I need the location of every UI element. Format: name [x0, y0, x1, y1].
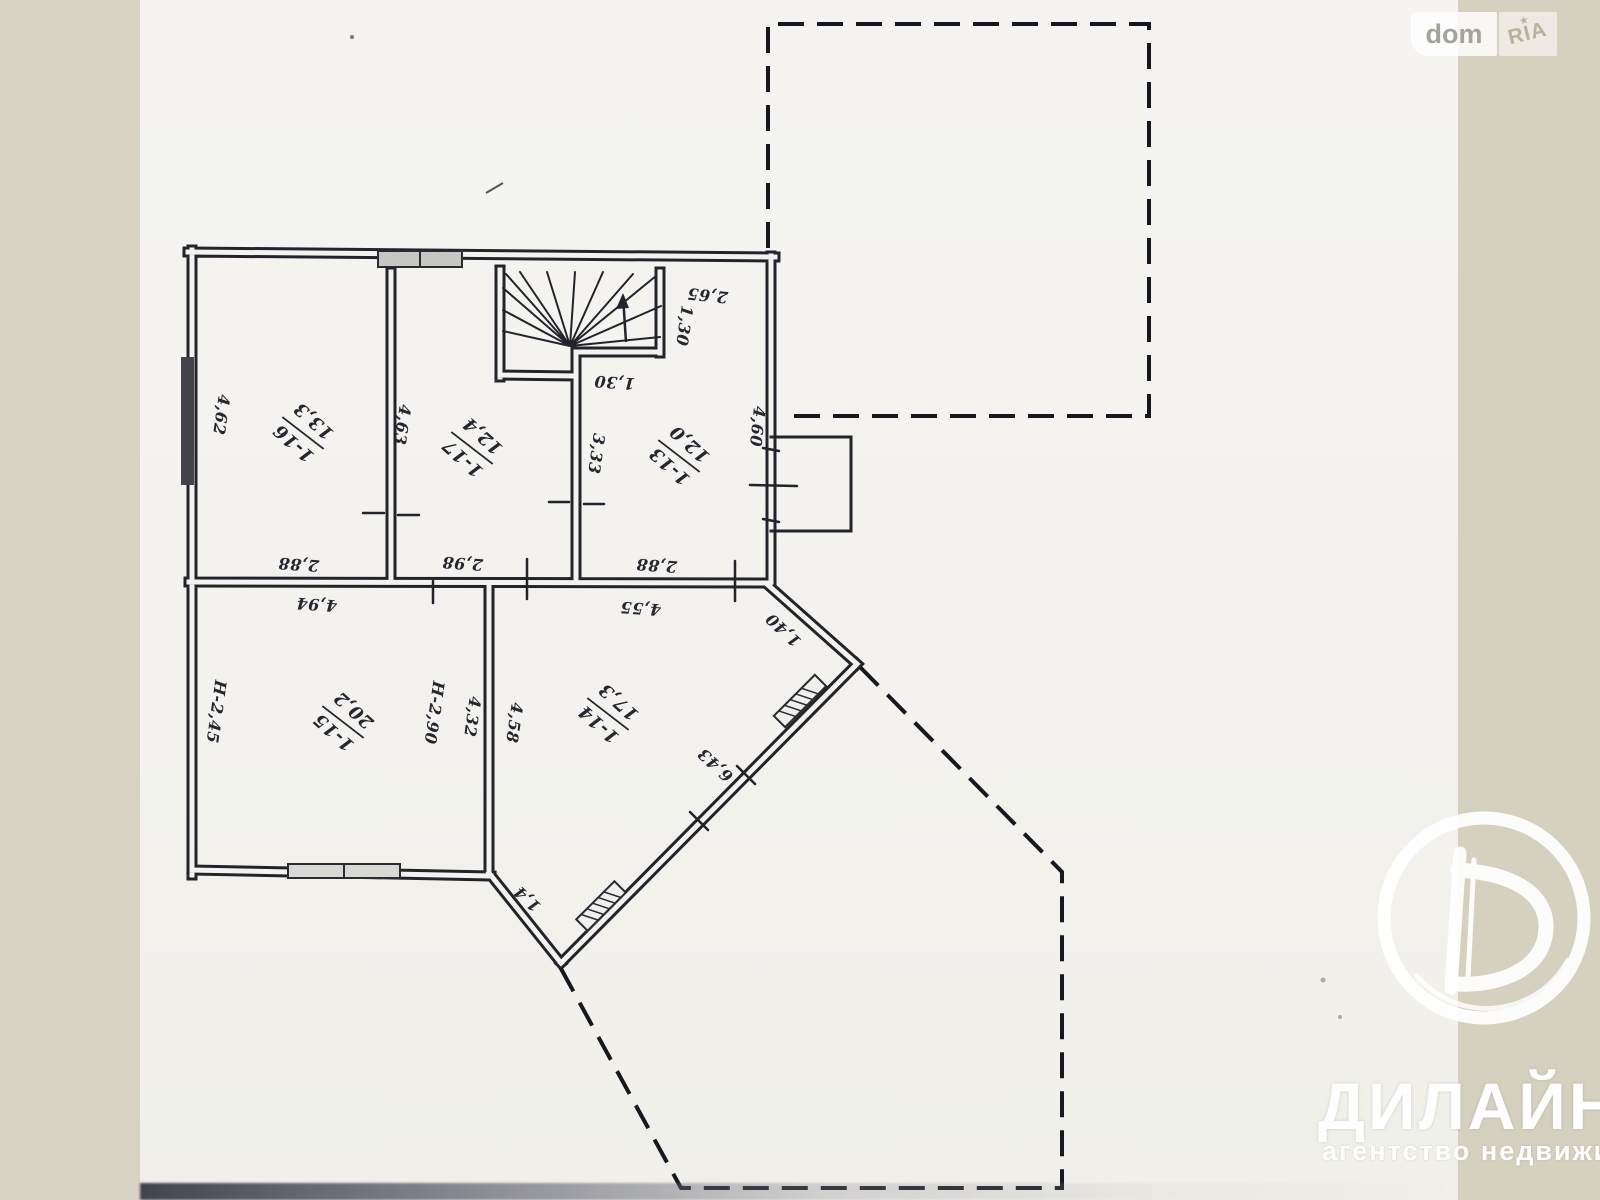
dim-room17-bottom: 2,98 [442, 553, 485, 575]
dim-room16-left: 4,62 [209, 393, 234, 436]
floor-plan-drawing: 1-16 13,3 1-17 12,4 1-13 12,0 1-15 20,2 … [0, 0, 1600, 1200]
scan-edge-shadow [140, 1183, 1458, 1200]
scanned-floor-plan-page: 1-16 13,3 1-17 12,4 1-13 12,0 1-15 20,2 … [0, 0, 1600, 1200]
dim-room14-top: 4,55 [620, 598, 662, 620]
dim-wall-17-13: 3,33 [584, 432, 609, 475]
domria-watermark-ria: ★ RIA [1499, 12, 1557, 56]
window-left-wall [181, 357, 194, 485]
dim-room16-bottom: 2,88 [278, 554, 321, 576]
window-bottom-wall [288, 864, 400, 878]
dim-height-room15-mid: H-2,90 [421, 679, 449, 746]
domria-watermark-dom: dom [1411, 12, 1497, 56]
agency-tagline: агентство недвижимо [1322, 1136, 1600, 1167]
dim-stairs-top: 2,65 [686, 284, 730, 307]
dim-right-wall: 4,60 [746, 405, 769, 448]
dashed-outline-upper [768, 24, 1149, 416]
dashed-outline-lower [559, 667, 1062, 1188]
walls [188, 250, 857, 963]
dim-stairs-landing: 1,30 [594, 372, 636, 394]
domria-ria-text: RIA [1506, 18, 1550, 51]
dim-wall-15-14-lower: 4,58 [502, 701, 527, 744]
dim-wall-15-14-upper: 4,32 [460, 695, 485, 738]
room-label-1-15: 1-15 20,2 [308, 685, 381, 758]
staircase [503, 272, 661, 346]
domria-watermark: dom ★ RIA [1411, 12, 1557, 56]
dim-diagonal-se: 6,43 [694, 744, 737, 786]
dim-stairs-right: 1,30 [672, 304, 697, 347]
scan-marks [350, 35, 1342, 1019]
domria-dom-text: dom [1426, 19, 1483, 50]
dim-height-room15-left: H-2,45 [203, 678, 231, 745]
room-label-1-13: 1-13 12,0 [644, 419, 717, 492]
agency-name: ДИЛАЙН [1318, 1068, 1600, 1144]
balcony-bay-outline [771, 437, 851, 531]
dim-room15-top: 4,94 [296, 594, 338, 616]
room-label-1-17: 1-17 12,4 [437, 411, 510, 484]
room-label-1-16: 1-16 13,3 [268, 396, 341, 469]
dim-room13-bottom: 2,88 [636, 555, 679, 577]
window-top-wall [378, 251, 462, 267]
room-label-1-14: 1-14 17,3 [573, 677, 646, 750]
